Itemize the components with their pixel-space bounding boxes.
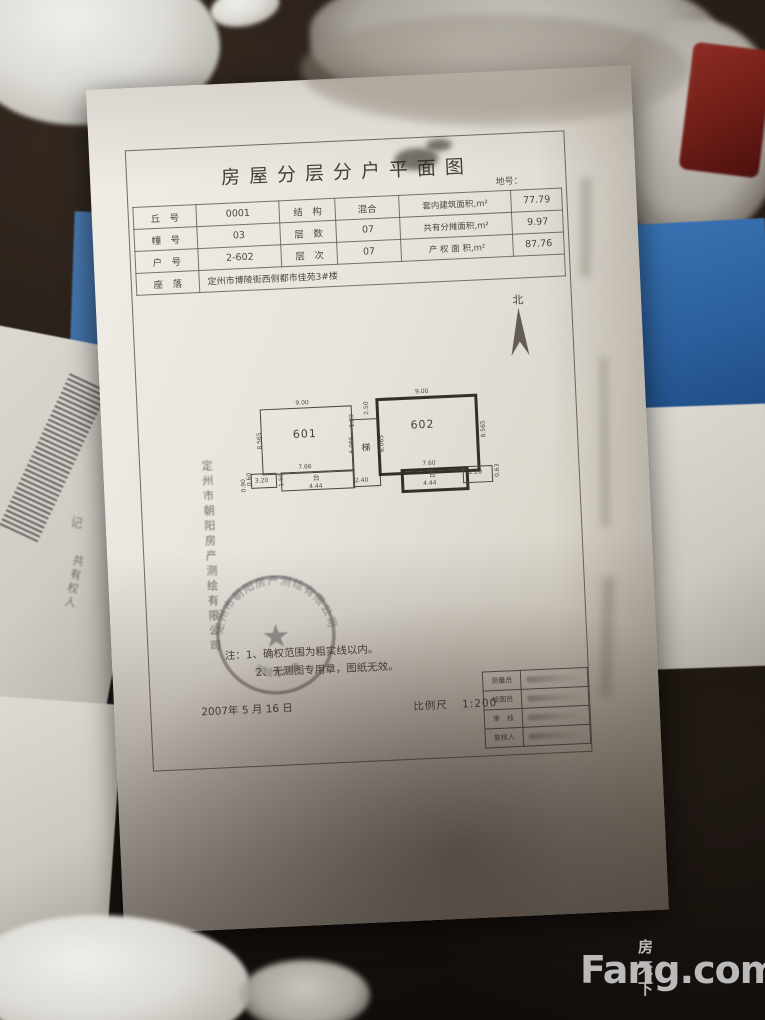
- dim-stair-right: 6.065: [378, 435, 386, 452]
- label-floors: 层 数: [280, 220, 337, 245]
- signature-table: 测量员 绘图员 审 核 复核人: [482, 667, 591, 749]
- label-address: 座 落: [136, 271, 200, 296]
- ink-smudge-2: [426, 138, 453, 151]
- dim-602-top: 9.00: [415, 388, 429, 396]
- label-level: 层 次: [281, 242, 338, 267]
- document-title: 房屋分层分户平面图: [186, 150, 507, 191]
- photo-scene: 共有权人 记 房屋分层分户平面图 地号： 丘 号 0001 结 构 混合 套内建…: [0, 0, 765, 1020]
- paper-crease: [600, 357, 610, 527]
- land-number-label: 地号：: [495, 173, 523, 187]
- value-structure: 混合: [335, 195, 399, 220]
- scale-label: 比例尺: [413, 699, 448, 713]
- value-inner-area: 77.79: [511, 188, 563, 212]
- value-property-area: 87.76: [513, 232, 565, 256]
- north-indicator: 北: [505, 291, 534, 362]
- unit-601-label: 601: [293, 427, 318, 441]
- value-level: 07: [337, 239, 401, 264]
- dim-balcony-left-side: 1.50: [278, 473, 286, 487]
- sign-label-surveyor: 测量员: [482, 670, 521, 691]
- underlay-mark: 记: [69, 513, 84, 532]
- dim-stair-left: 6.065: [348, 436, 356, 453]
- fang-logo: Fang.com: [580, 948, 765, 992]
- sign-label-checker: 复核人: [485, 727, 524, 748]
- dim-annex-left-w: 3.20: [255, 477, 269, 485]
- stair-label: 梯: [358, 442, 371, 452]
- drawing-frame: 房屋分层分户平面图 地号： 丘 号 0001 结 构 混合 套内建筑面积,m² …: [125, 130, 593, 771]
- plastic-scrap-bottom: [240, 960, 370, 1020]
- sign-label-reviewer: 审 核: [484, 708, 523, 729]
- dim-stair-top-v: 2.50: [363, 401, 371, 415]
- dim-stair-top-h: 1.20: [348, 414, 356, 428]
- balcony-right-label: 台: [429, 470, 436, 480]
- floor-plan-document: 房屋分层分户平面图 地号： 丘 号 0001 结 构 混合 套内建筑面积,m² …: [86, 65, 669, 934]
- paper-crease: [600, 577, 615, 697]
- label-unit-no: 户 号: [135, 249, 199, 274]
- dim-annex-right-w: 2.20: [469, 468, 483, 476]
- dim-annex-left-extra: 0.90: [240, 479, 248, 493]
- white-paper-bottom-left: [0, 696, 123, 950]
- table-row: 复核人: [485, 724, 591, 748]
- survey-date: 2007年 5 月 16 日: [201, 700, 293, 719]
- label-parcel-no: 丘 号: [133, 205, 197, 230]
- plastic-scrap-top: [207, 0, 283, 33]
- dim-601-top: 9.00: [295, 399, 309, 407]
- label-building-no: 幢 号: [134, 227, 198, 252]
- north-label: 北: [505, 291, 532, 308]
- paper-crease: [580, 177, 591, 277]
- north-arrow-icon: [507, 307, 531, 358]
- dim-balcony-left: 4.44: [309, 483, 323, 491]
- dim-602-bottom: 7.60: [422, 460, 436, 468]
- info-table: 丘 号 0001 结 构 混合 套内建筑面积,m² 77.79 幢 号 03 层…: [132, 188, 566, 296]
- value-shared-area: 9.97: [512, 210, 564, 234]
- unit-602-label: 602: [410, 418, 435, 432]
- red-object-top-right: [678, 42, 765, 179]
- floor-plan: 601 602 梯 9.00 9.00 8.565 8.565 6.065 6.…: [247, 387, 503, 540]
- value-floors: 07: [336, 217, 400, 242]
- dim-annex-right-h: 0.63: [494, 463, 502, 477]
- label-structure: 结 构: [279, 198, 336, 223]
- dim-601-bottom: 7.66: [298, 463, 312, 471]
- plastic-over-document: [300, 14, 690, 126]
- dim-601-left: 8.565: [256, 432, 264, 449]
- dim-602-right: 8.565: [479, 420, 487, 437]
- plastic-bag-bottom-left: [0, 915, 250, 1020]
- balcony-left-label: 台: [313, 473, 320, 483]
- dim-balcony-right: 4.44: [423, 480, 437, 488]
- sign-label-drafter: 绘图员: [483, 689, 522, 710]
- sign-value-checker: [523, 724, 591, 746]
- barcode: [0, 373, 108, 543]
- notes-block: 注：1、确权范围为粗实线以内。 2、无测图专用章，图纸无效。: [224, 639, 399, 684]
- dim-middle-bottom: 2.40: [355, 477, 369, 485]
